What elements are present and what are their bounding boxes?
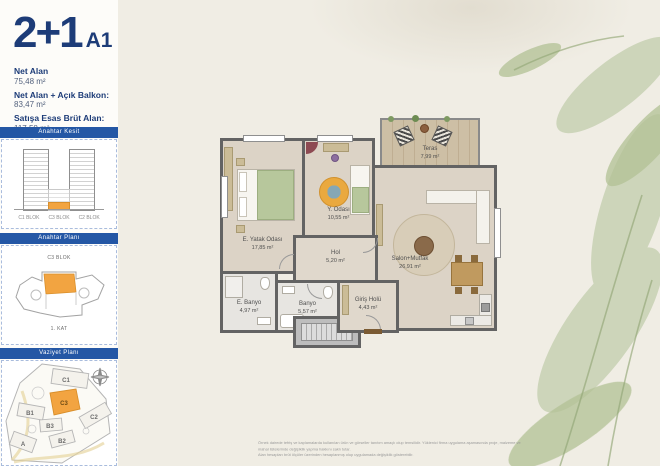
desk-chair	[331, 154, 339, 162]
stat-label: Net Alan + Açık Balkon:	[14, 90, 114, 101]
room-label: E. Banyo 4,97 m²	[223, 300, 275, 314]
disclaimer-line: Örnek dairede tefriş ve kaplamalarda kul…	[258, 441, 523, 453]
window	[317, 135, 353, 142]
section-header-anahtar-plani: Anahtar Planı	[0, 233, 118, 244]
block-labels-row: C1 BLOK C3 BLOK C2 BLOK	[2, 215, 116, 221]
site-label-c1: C1	[62, 378, 70, 384]
section-header-vaziyet-plani: Vaziyet Planı	[0, 348, 118, 359]
pillow	[239, 197, 247, 217]
desk	[323, 143, 349, 152]
floor-plan: Teras 7,99 m² Salon+Mutfak 26,91 m²	[215, 116, 500, 348]
nightstand	[236, 225, 245, 233]
compass-icon	[91, 368, 109, 386]
room-y-odasi: Y. Odası 10,55 m²	[302, 138, 375, 238]
room-label: Salon+Mutfak 26,91 m²	[375, 256, 445, 270]
room-label: E. Yatak Odası 17,85 m²	[223, 237, 302, 251]
plant-icon	[412, 115, 419, 122]
entry-door	[364, 329, 382, 334]
site-label-b1: B1	[26, 411, 34, 417]
key-section-diagram: C1 BLOK C3 BLOK C2 BLOK	[1, 139, 117, 229]
dining-chair	[455, 255, 462, 262]
ground-line	[14, 209, 104, 210]
sofa-chaise	[476, 190, 490, 244]
key-plan-block-label: C3 BLOK	[2, 255, 116, 261]
unit-variant-label: A1	[86, 29, 113, 52]
dining-chair	[471, 287, 478, 294]
key-plan-footprint	[12, 265, 108, 321]
plant-icon	[444, 116, 450, 122]
toilet	[260, 277, 270, 290]
site-label-b3: B3	[46, 424, 54, 430]
window	[221, 176, 228, 218]
watercolor-wash	[240, 0, 660, 120]
round-rug	[319, 177, 349, 207]
block-label: C3 BLOK	[48, 215, 69, 221]
disclaimer: Örnek dairede tefriş ve kaplamalarda kul…	[258, 441, 523, 459]
room-teras: Teras 7,99 m²	[380, 118, 480, 167]
section-header-anahtar-kesit: Anahtar Kesit	[0, 127, 118, 138]
unit-type-title: 2+1	[13, 8, 82, 57]
site-label-a: A	[21, 442, 26, 448]
sink	[257, 317, 271, 325]
site-plan-map: C1 C3 C2 B1 B3 B2 A	[2, 361, 116, 465]
site-label-c2: C2	[90, 415, 98, 421]
terrace-chair	[431, 125, 452, 146]
dining-table	[451, 262, 483, 286]
sink-icon	[465, 317, 474, 325]
sink	[282, 286, 295, 294]
pillow	[239, 172, 247, 192]
page-title: 2+1A1	[13, 8, 113, 58]
left-panel: 2+1A1 Net Alan 75,48 m² Net Alan + Açık …	[0, 0, 118, 466]
key-plan-floor-label: 1. KAT	[2, 326, 116, 332]
room-giris-holu: Giriş Holü 4,43 m²	[337, 280, 399, 333]
key-plan-diagram: C3 BLOK 1. KAT	[1, 245, 117, 345]
site-plan-diagram: C1 C3 C2 B1 B3 B2 A	[1, 360, 117, 466]
block-label: C1 BLOK	[18, 215, 39, 221]
block-label: C2 BLOK	[79, 215, 100, 221]
stat-value: 75,48 m²	[14, 77, 114, 87]
site-label-b2: B2	[58, 439, 66, 445]
shower	[225, 276, 243, 298]
stat-label: Satışa Esas Brüt Alan:	[14, 113, 114, 124]
bed-blanket	[257, 170, 294, 220]
brochure-page: 2+1A1 Net Alan 75,48 m² Net Alan + Açık …	[0, 0, 660, 466]
window	[243, 135, 285, 142]
dining-chair	[455, 287, 462, 294]
room-label: Banyo 5,57 m²	[278, 301, 337, 315]
highlighted-unit	[44, 274, 76, 294]
armchair	[306, 142, 318, 154]
entry-door-arc	[366, 315, 381, 330]
stat-label: Net Alan	[14, 66, 114, 77]
room-e-banyo: E. Banyo 4,97 m²	[220, 271, 278, 333]
tower-c1	[23, 149, 49, 211]
coffee-table	[414, 236, 434, 256]
terrace-table	[420, 124, 429, 133]
stat-value: 83,47 m²	[14, 100, 114, 110]
room-label: Y. Odası 10,55 m²	[305, 207, 372, 221]
toilet	[323, 286, 333, 299]
dining-chair	[471, 255, 478, 262]
room-label: Giriş Holü 4,43 m²	[340, 297, 396, 311]
disclaimer-line: Alan hesapları brüt ölçüler üzerinden he…	[258, 453, 523, 459]
nightstand	[236, 158, 245, 166]
stove-icon	[481, 303, 490, 312]
terrace-chair	[393, 125, 414, 146]
site-label-c3: C3	[60, 401, 68, 407]
tower-c2	[69, 149, 95, 211]
window	[494, 208, 501, 258]
plant-icon	[388, 116, 394, 122]
room-label: Teras 7,99 m²	[382, 146, 478, 160]
